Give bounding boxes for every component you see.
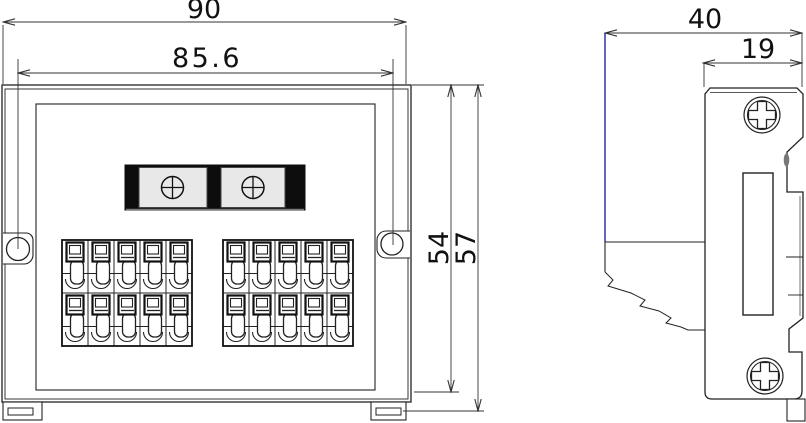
wire-entry-slot (310, 260, 323, 284)
side-bottom-foot (787, 399, 805, 421)
wire-entry-slot (149, 313, 162, 337)
wire-entry-slot (284, 260, 297, 284)
wire-entry-slot (175, 313, 188, 337)
right-foot-slot (376, 408, 401, 415)
bottom-feet (3, 402, 406, 420)
dim-label-width-outer: 90 (187, 0, 221, 25)
wire-entry-slot (71, 313, 84, 337)
side-slot (743, 173, 773, 315)
wire-entry-slot (123, 313, 136, 337)
terminal-screw-icon (162, 177, 184, 199)
technical-drawing: 90 85.6 54 57 (0, 0, 806, 423)
din-clip-detent (784, 154, 790, 167)
drawing-canvas: 90 85.6 54 57 (0, 0, 806, 423)
wire-entry-slot (258, 260, 271, 284)
phillips-screw-bottom-icon (747, 358, 783, 394)
front-panel (36, 104, 375, 390)
wire-entry-slot (258, 313, 271, 337)
flange-break-line (605, 272, 705, 330)
wire-entry-slot (284, 313, 297, 337)
wire-entry-slot (123, 260, 136, 284)
dim-label-height-total: 57 (451, 231, 482, 265)
left-foot-slot (8, 408, 33, 415)
front-view (2, 85, 411, 420)
wire-entry-slot (336, 260, 349, 284)
terminal-screw-icon (242, 177, 264, 199)
wire-entry-slot (336, 313, 349, 337)
mounting-flange (605, 33, 705, 330)
wire-entry-slot (97, 260, 110, 284)
dim-label-depth-body: 19 (741, 34, 775, 65)
wire-entry-slot (71, 260, 84, 284)
label-strip (125, 165, 305, 210)
side-view (605, 33, 805, 421)
phillips-screw-top-icon (744, 97, 780, 133)
wire-entry-slot (97, 313, 110, 337)
wire-entry-slot (175, 260, 188, 284)
right-mounting-hole-icon (381, 233, 403, 255)
wire-entry-slot (310, 313, 323, 337)
wire-entry-slot (232, 260, 245, 284)
wire-entry-slot (232, 313, 245, 337)
wire-entry-slot (149, 260, 162, 284)
dim-label-hole-spacing: 85.6 (172, 43, 242, 74)
dim-label-depth-total: 40 (688, 4, 722, 35)
